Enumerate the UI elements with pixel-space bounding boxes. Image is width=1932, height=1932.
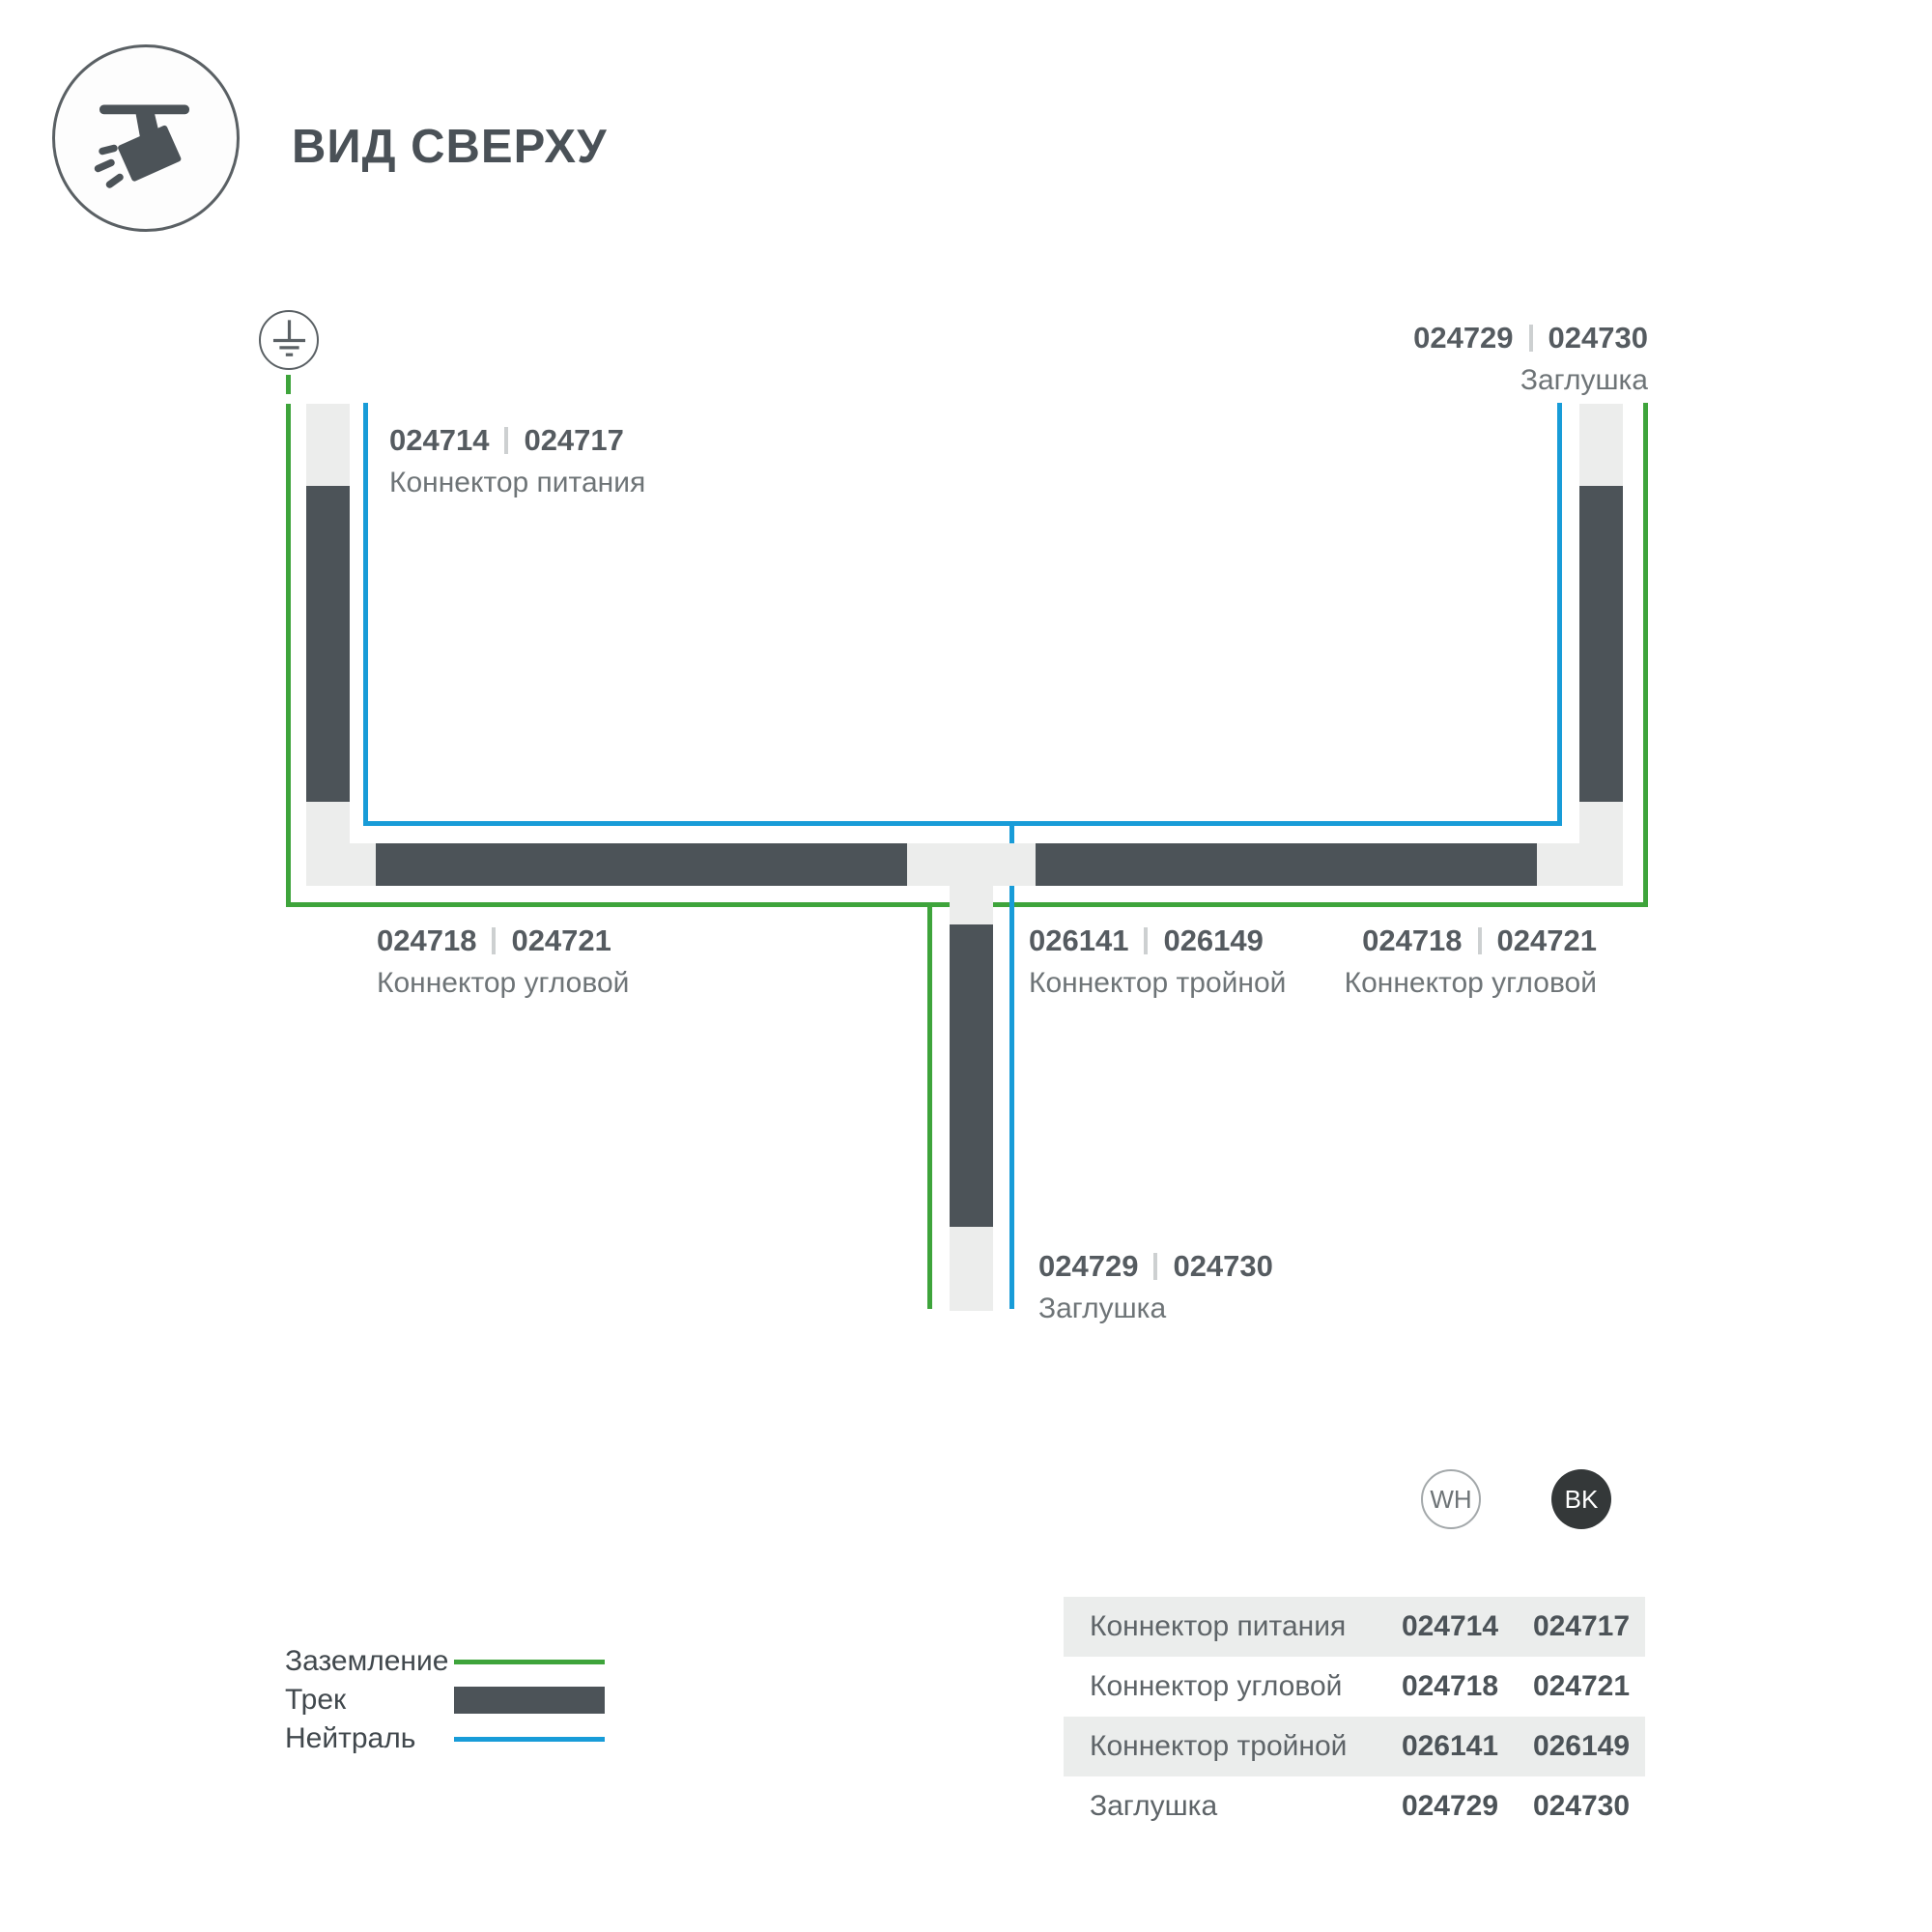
ground-line-right-vertical: [1643, 403, 1648, 907]
code-b: 024730: [1548, 321, 1648, 355]
track-segment-branch: [950, 924, 993, 1227]
label-corner-left-name: Коннектор угловой: [377, 967, 629, 1000]
page-title: ВИД СВЕРХУ: [292, 120, 608, 174]
label-power-connector: 024714024717 Коннектор питания: [389, 423, 645, 499]
row-code-wh: 024718: [1382, 1670, 1518, 1703]
label-endcap-top-codes: 024729024730: [1413, 321, 1648, 355]
label-endcap-bottom-name: Заглушка: [1038, 1293, 1273, 1325]
code-a: 024729: [1413, 321, 1513, 355]
row-code-bk: 024721: [1518, 1670, 1645, 1703]
code-separator: [1144, 927, 1148, 954]
track-segment-bottom-left: [376, 843, 907, 886]
table-row: Коннектор угловой 024718 024721: [1064, 1657, 1645, 1717]
legend-ground-line-swatch: [454, 1660, 605, 1664]
track-segment-bottom-right: [1036, 843, 1537, 886]
label-corner-left-codes: 024718024721: [377, 923, 629, 958]
ground-line-bottom-right: [993, 902, 1648, 907]
track-segment-left: [306, 486, 350, 802]
label-power-codes: 024714024717: [389, 423, 645, 458]
code-separator: [1529, 325, 1533, 352]
ground-line-bottom-left: [286, 902, 950, 907]
table-row: Заглушка 024729 024730: [1064, 1776, 1645, 1836]
legend-label-track: Трек: [285, 1684, 454, 1717]
code-separator: [1478, 927, 1482, 954]
label-corner-right-name: Коннектор угловой: [1345, 967, 1597, 1000]
label-endcap-top-name: Заглушка: [1413, 364, 1648, 397]
product-table: Коннектор питания 024714 024717 Коннекто…: [1064, 1597, 1645, 1836]
earth-ground-icon: [259, 310, 319, 370]
label-triple-codes: 026141026149: [1029, 923, 1286, 958]
neutral-line-left-vertical: [363, 403, 368, 826]
code-b: 026149: [1163, 923, 1263, 958]
neutral-line-branch-vertical: [1009, 826, 1014, 1309]
track-segment-right: [1579, 486, 1623, 802]
ground-line-left-vertical: [286, 415, 291, 907]
label-corner-connector-right: 024718024721 Коннектор угловой: [1345, 923, 1597, 1000]
code-separator: [1153, 1253, 1157, 1280]
earth-ground-glyph: [262, 313, 317, 368]
code-b: 024730: [1173, 1249, 1272, 1284]
legend-label-ground: Заземление: [285, 1645, 454, 1678]
code-a: 024718: [377, 923, 476, 958]
row-name: Коннектор питания: [1064, 1610, 1382, 1643]
spotlight-icon-glyph: [73, 66, 218, 211]
code-b: 024721: [511, 923, 611, 958]
row-code-bk: 024717: [1518, 1610, 1645, 1643]
legend-row-track: Трек: [285, 1681, 605, 1719]
row-code-bk: 024730: [1518, 1790, 1645, 1823]
label-endcap-bottom: 024729024730 Заглушка: [1038, 1249, 1273, 1325]
legend-label-neutral: Нейтраль: [285, 1722, 454, 1755]
label-triple-connector: 026141026149 Коннектор тройной: [1029, 923, 1286, 1000]
row-code-wh: 026141: [1382, 1730, 1518, 1763]
neutral-line-right-vertical: [1557, 403, 1562, 821]
label-triple-name: Коннектор тройной: [1029, 967, 1286, 1000]
code-a: 024714: [389, 423, 489, 458]
row-name: Коннектор угловой: [1064, 1670, 1382, 1703]
label-corner-right-codes: 024718024721: [1345, 923, 1597, 958]
table-row: Коннектор тройной 026141 026149: [1064, 1717, 1645, 1776]
code-b: 024717: [524, 423, 623, 458]
track-spotlight-icon: [52, 44, 240, 232]
row-code-wh: 024714: [1382, 1610, 1518, 1643]
legend: Заземление Трек Нейтраль: [285, 1642, 605, 1758]
row-name: Коннектор тройной: [1064, 1730, 1382, 1763]
legend-neutral-line-swatch: [454, 1737, 605, 1742]
label-endcap-top: 024729024730 Заглушка: [1413, 321, 1648, 397]
variant-badge-black: BK: [1551, 1469, 1611, 1529]
label-endcap-bottom-codes: 024729024730: [1038, 1249, 1273, 1284]
code-separator: [504, 427, 508, 454]
row-code-wh: 024729: [1382, 1790, 1518, 1823]
page: ВИД СВЕРХУ 024714024717 Коннектор питани…: [0, 0, 1932, 1932]
ground-line-branch-vertical: [927, 907, 932, 1309]
legend-track-bar-swatch: [454, 1687, 605, 1714]
neutral-line-horizontal: [363, 821, 1562, 826]
row-code-bk: 026149: [1518, 1730, 1645, 1763]
code-a: 024718: [1362, 923, 1462, 958]
table-row: Коннектор питания 024714 024717: [1064, 1597, 1645, 1657]
code-a: 024729: [1038, 1249, 1138, 1284]
legend-row-neutral: Нейтраль: [285, 1719, 605, 1758]
ground-line-dashed: [286, 375, 291, 417]
code-separator: [492, 927, 496, 954]
label-power-name: Коннектор питания: [389, 467, 645, 499]
row-name: Заглушка: [1064, 1790, 1382, 1823]
code-a: 026141: [1029, 923, 1128, 958]
variant-badge-white: WH: [1421, 1469, 1481, 1529]
label-corner-connector-left: 024718024721 Коннектор угловой: [377, 923, 629, 1000]
code-b: 024721: [1497, 923, 1597, 958]
legend-row-ground: Заземление: [285, 1642, 605, 1681]
